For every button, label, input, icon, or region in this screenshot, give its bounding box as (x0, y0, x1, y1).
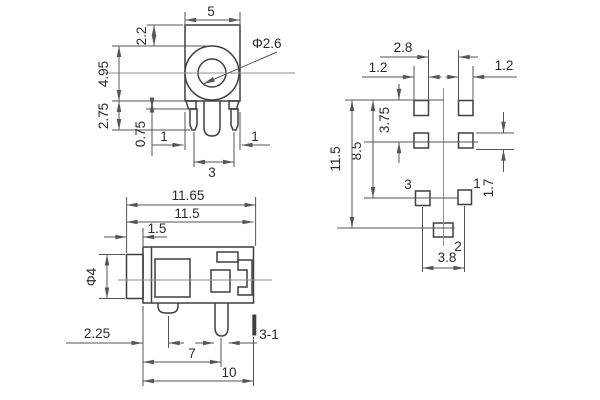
footprint-view: 2.8 1.2 1.2 3.75 8.5 11.5 1.7 (328, 40, 517, 272)
dim-pad-width-left: 1.2 (369, 60, 388, 75)
side-view-outline (118, 247, 272, 336)
pad-row2-left (414, 133, 429, 148)
pad-pin1 (458, 190, 472, 205)
dim-pin-length: 2.75 (96, 103, 111, 129)
pin3-number: 3 (404, 177, 412, 192)
dim-overall-length: 11.65 (172, 188, 205, 203)
dim-pad-height: 1.7 (481, 179, 496, 198)
jack-body-side (143, 247, 254, 303)
dim-mid-height: 8.5 (349, 142, 364, 161)
dim-pin-spacing: 3 (208, 165, 216, 180)
dim-row-pitch: 3.75 (377, 107, 392, 133)
pin2-side (215, 303, 228, 336)
dim-pin2-offset: 7 (188, 346, 196, 361)
right-tab (229, 101, 239, 109)
audio-jack-dimension-drawing: 5 Φ2.6 2.2 4.95 2.75 0.75 1 (0, 0, 600, 400)
left-pin-front (190, 109, 197, 130)
pin3-side (253, 315, 256, 335)
right-pin-front (231, 109, 238, 130)
pad-row2-right (459, 133, 474, 148)
pin2-number: 2 (454, 239, 462, 254)
jack-body-front (185, 25, 240, 101)
dim-barrel-length: 1.5 (148, 221, 167, 236)
dim-right-pin-offset: 1 (251, 129, 259, 144)
pad-row1-left (414, 101, 429, 116)
dim-total-height: 11.5 (328, 146, 343, 171)
front-view: 5 Φ2.6 2.2 4.95 2.75 0.75 1 (96, 4, 295, 180)
center-pin-front (204, 101, 220, 136)
rear-contact-bracket (238, 260, 252, 295)
pin1-side (158, 303, 178, 313)
top-slot (217, 252, 238, 262)
dim-pin1-offset: 2.25 (84, 326, 110, 341)
left-tab (186, 101, 196, 109)
dim-ring-dia: 4.95 (96, 61, 111, 87)
side-view: 11.65 11.5 1.5 Φ4 2.25 3-1 7 (66, 188, 279, 386)
jack-barrel (127, 255, 144, 299)
dim-body-with-barrel: 11.5 (174, 206, 199, 221)
dim-barrel-dia: Φ4 (84, 267, 99, 286)
front-view-dimensions: 5 Φ2.6 2.2 4.95 2.75 0.75 1 (96, 4, 282, 180)
dim-hole-dia: Φ2.6 (252, 36, 282, 51)
dim-left-pin-offset: 1 (160, 129, 168, 144)
dim-pad-width-right: 1.2 (495, 58, 514, 73)
dim-body-length: 10 (221, 365, 236, 380)
dim-front-width: 5 (207, 4, 215, 19)
mid-contact (211, 270, 230, 292)
pad-row1-right (459, 101, 474, 116)
dim-pin-note: 3-1 (259, 327, 279, 342)
dim-top-to-ring: 2.2 (134, 27, 149, 46)
dim-pad-col-gap: 2.8 (394, 40, 413, 55)
dim-tab-height: 0.75 (133, 121, 148, 147)
pin1-number: 1 (473, 176, 481, 191)
contact-box (155, 259, 190, 297)
technical-drawing-page: 5 Φ2.6 2.2 4.95 2.75 0.75 1 (0, 0, 600, 400)
